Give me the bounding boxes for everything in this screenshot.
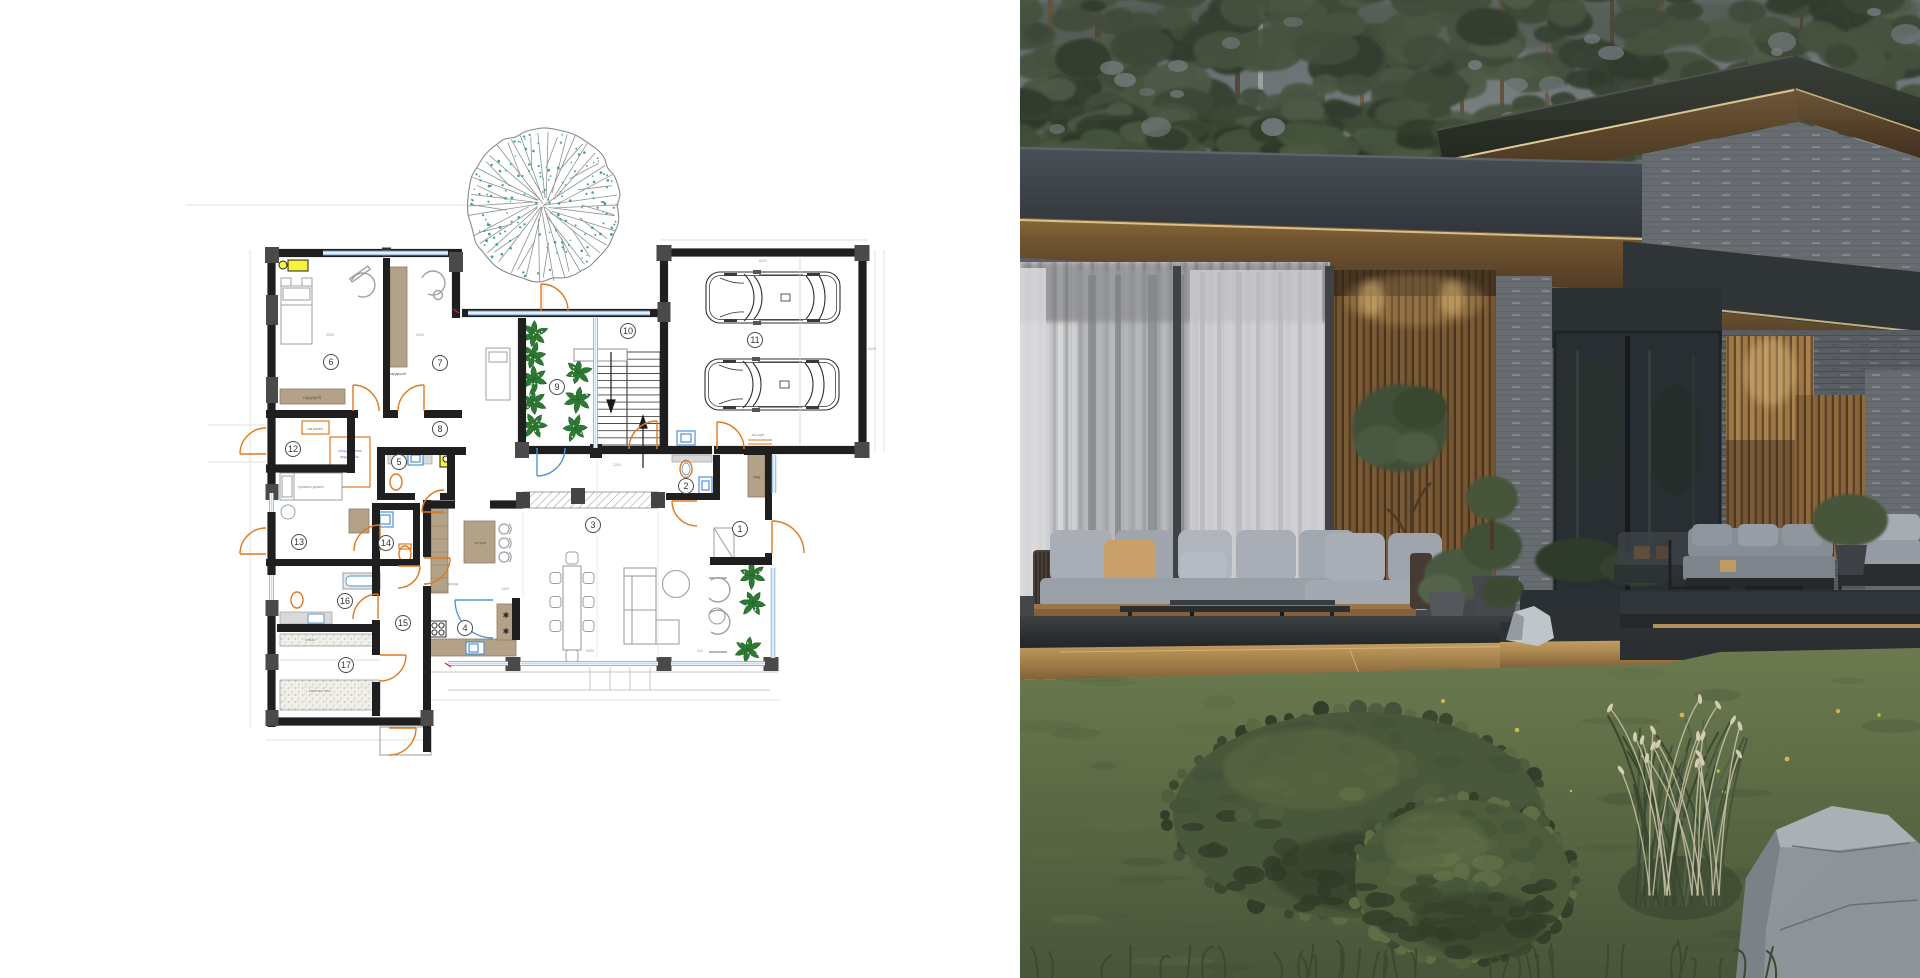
svg-text:гардероб: гардероб: [303, 395, 321, 400]
svg-text:остров: остров: [474, 541, 485, 545]
svg-text:10: 10: [623, 326, 633, 336]
svg-text:17: 17: [341, 660, 351, 670]
svg-text:гард.: гард.: [753, 475, 761, 479]
svg-text:13: 13: [294, 537, 304, 547]
svg-text:✱: ✱: [503, 627, 510, 636]
svg-text:12: 12: [288, 444, 298, 454]
svg-text:440: 440: [697, 649, 703, 653]
svg-text:1: 1: [737, 524, 742, 534]
svg-text:газ-котел: газ-котел: [307, 427, 322, 431]
svg-text:14: 14: [381, 538, 391, 548]
svg-text:1400: 1400: [501, 587, 509, 591]
svg-text:2: 2: [683, 481, 688, 491]
svg-text:11: 11: [750, 335, 759, 345]
svg-text:5400: 5400: [868, 347, 876, 351]
svg-text:7: 7: [437, 358, 442, 368]
svg-text:кровать-диван: кровать-диван: [298, 485, 323, 489]
svg-text:8: 8: [437, 424, 442, 434]
svg-text:3000: 3000: [326, 333, 334, 337]
svg-text:6: 6: [328, 357, 333, 367]
svg-text:2200: 2200: [613, 463, 621, 467]
svg-text:6000: 6000: [759, 259, 767, 263]
svg-text:6400: 6400: [586, 649, 594, 653]
svg-text:каменка печь: каменка печь: [309, 689, 331, 693]
svg-text:9: 9: [554, 382, 559, 392]
svg-text:3: 3: [590, 520, 595, 530]
svg-text:проход: проход: [446, 582, 459, 586]
svg-text:16: 16: [340, 596, 350, 606]
svg-text:хоз.щит: хоз.щит: [752, 433, 765, 437]
svg-text:2600: 2600: [416, 333, 424, 337]
svg-text:4: 4: [462, 623, 467, 633]
svg-text:гардероб: гардероб: [390, 372, 407, 376]
svg-text:✱: ✱: [503, 611, 510, 620]
svg-text:лежак: лежак: [305, 638, 315, 642]
svg-text:5: 5: [396, 457, 401, 467]
svg-text:15: 15: [398, 618, 408, 628]
